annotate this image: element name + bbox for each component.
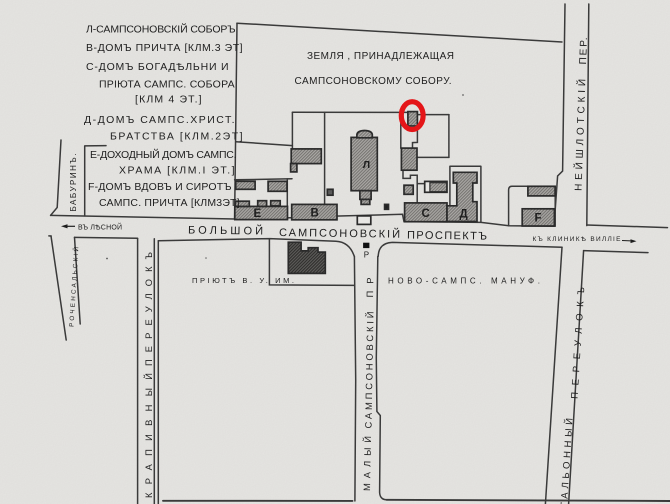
svg-text:БОЛЬШОЙ: БОЛЬШОЙ: [188, 224, 263, 238]
svg-text:САМПСОНОВСКОМУ СОБОРУ.: САМПСОНОВСКОМУ СОБОРУ.: [295, 76, 454, 87]
svg-text:[КЛМ 4 ЭТ.]: [КЛМ 4 ЭТ.]: [135, 94, 202, 106]
svg-text:ПРОСПЕКТЪ: ПРОСПЕКТЪ: [407, 230, 487, 243]
svg-text:С-ДОМЪ БОГАДѢЛЬНИ И: С-ДОМЪ БОГАДѢЛЬНИ И: [86, 61, 229, 73]
svg-text:БРАТСТВА [КЛМ.2ЭТ]: БРАТСТВА [КЛМ.2ЭТ]: [110, 131, 243, 143]
svg-text:ПЕРЕУЛОКЪ: ПЕРЕУЛОКЪ: [144, 252, 154, 366]
svg-text:Л-САМПСОНОВСКІЙ СОБОРЪ: Л-САМПСОНОВСКІЙ СОБОРЪ: [86, 23, 236, 36]
svg-text:КЪ КЛИНИКѢ ВИЛЛІЕ: КЪ КЛИНИКѢ ВИЛЛІЕ: [533, 236, 622, 243]
svg-text:Е-ДОХОДНЫЙ ДОМЪ САМПС.: Е-ДОХОДНЫЙ ДОМЪ САМПС.: [90, 148, 237, 161]
svg-text:С: С: [422, 208, 430, 220]
svg-text:ХРАМА [КЛМ.I ЭТ.]: ХРАМА [КЛМ.I ЭТ.]: [119, 165, 235, 177]
svg-text:ВЪ ЛѢСНОЙ: ВЪ ЛѢСНОЙ: [78, 223, 122, 232]
svg-text:В-ДОМЪ ПРИЧТА [КЛМ.3 ЭТ]: В-ДОМЪ ПРИЧТА [КЛМ.3 ЭТ]: [86, 42, 243, 54]
svg-text:САМПС. ПРИЧТА [КЛМ3ЭТ]: САМПС. ПРИЧТА [КЛМ3ЭТ]: [99, 197, 240, 209]
svg-text:F-ДОМЪ ВДОВЪ И СИРОТЪ: F-ДОМЪ ВДОВЪ И СИРОТЪ: [88, 181, 232, 193]
svg-text:Е: Е: [254, 208, 262, 220]
svg-text:В: В: [311, 208, 319, 220]
svg-text:Л: Л: [363, 159, 370, 171]
svg-text:БАБУРИНЪ.: БАБУРИНЪ.: [69, 154, 78, 212]
svg-text:САМПСОНОВСКІЙ: САМПСОНОВСКІЙ: [279, 226, 400, 241]
svg-text:Д: Д: [460, 209, 468, 221]
svg-text:КРАПИВНЫЙ: КРАПИВНЫЙ: [143, 373, 154, 498]
svg-text:Р: Р: [364, 251, 369, 260]
svg-text:F: F: [535, 213, 542, 225]
svg-text:Д-ДОМЪ САМПС.ХРИСТ.: Д-ДОМЪ САМПС.ХРИСТ.: [84, 114, 235, 126]
svg-text:ПРІЮТА САМПС. СОБОРА: ПРІЮТА САМПС. СОБОРА: [99, 79, 235, 91]
svg-text:ЗЕМЛЯ , ПРИНАДЛЕЖАЩАЯ: ЗЕМЛЯ , ПРИНАДЛЕЖАЩАЯ: [307, 51, 456, 62]
svg-text:ПРІЮТЪ В. У. ИМ.: ПРІЮТЪ В. У. ИМ.: [192, 276, 294, 285]
